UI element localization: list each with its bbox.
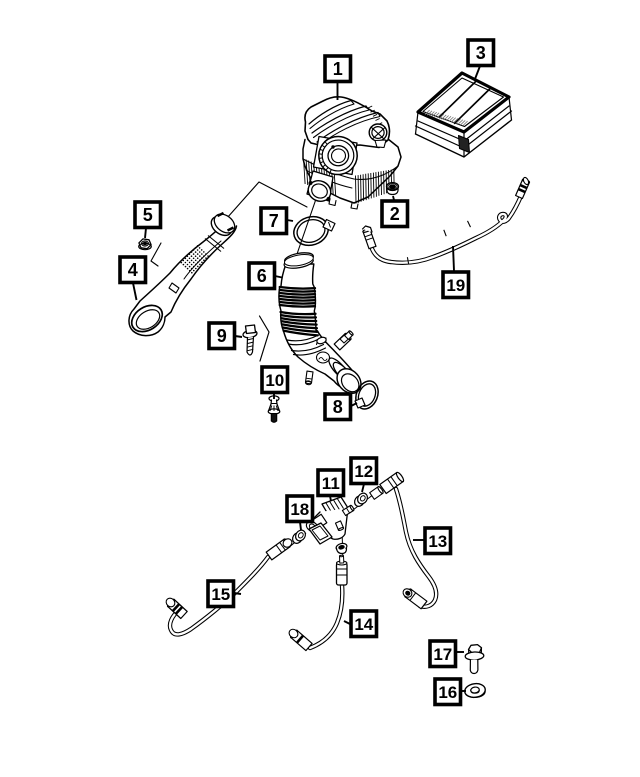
- svg-text:14: 14: [354, 615, 373, 634]
- svg-text:1: 1: [333, 59, 343, 79]
- svg-text:4: 4: [128, 260, 138, 280]
- svg-text:7: 7: [269, 211, 279, 231]
- svg-text:8: 8: [333, 397, 343, 417]
- svg-text:17: 17: [433, 645, 452, 664]
- svg-text:2: 2: [390, 204, 400, 224]
- svg-text:18: 18: [290, 500, 309, 519]
- svg-text:3: 3: [476, 43, 486, 63]
- svg-text:5: 5: [143, 205, 153, 225]
- svg-text:9: 9: [217, 326, 227, 346]
- svg-text:12: 12: [354, 462, 373, 481]
- svg-text:10: 10: [265, 371, 284, 390]
- svg-text:19: 19: [446, 276, 465, 295]
- svg-text:13: 13: [428, 532, 447, 551]
- svg-text:15: 15: [211, 585, 230, 604]
- svg-text:16: 16: [438, 683, 457, 702]
- svg-text:6: 6: [257, 266, 267, 286]
- svg-text:11: 11: [322, 474, 340, 493]
